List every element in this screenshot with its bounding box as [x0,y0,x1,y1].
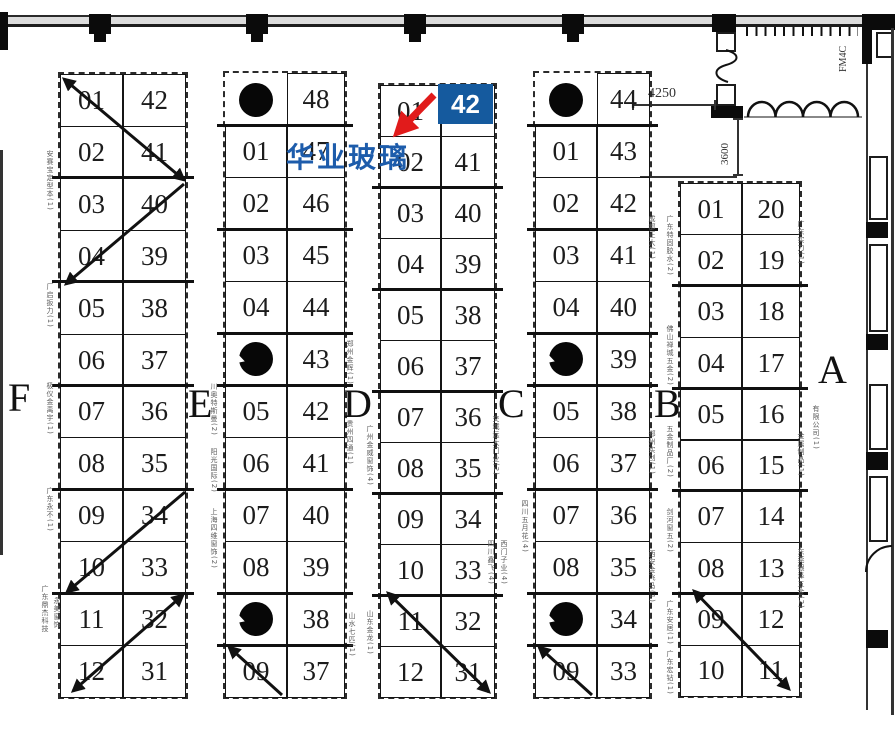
booth-cell-E41[interactable]: 41 [287,437,345,490]
booth-cell-F01[interactable]: 01 [60,74,123,127]
booth-cell-C38[interactable]: 38 [597,385,650,438]
booth-cell-E48[interactable]: 48 [287,73,345,126]
booth-cell-E02[interactable]: 02 [225,177,287,230]
booth-cell-D08[interactable]: 08 [380,442,441,494]
exhibitor-side-label: 阳光国际(2) [209,448,219,493]
column-pillar [89,14,111,34]
booth-cell-D36[interactable]: 36 [441,391,495,443]
booth-cell-E38[interactable]: 38 [287,593,345,646]
dimension-label-3600: 3600 [719,143,731,165]
booth-cell-C08[interactable]: 08 [535,541,597,594]
booth-cell-C06[interactable]: 06 [535,437,597,490]
booth-cell-B01[interactable]: 01 [680,183,742,235]
aisle-separator [372,492,503,495]
wall-block [866,630,888,648]
column-pillar [246,14,268,34]
booth-cell-E43[interactable]: 43 [287,333,345,386]
aisle-separator [672,489,808,492]
booth-cell-D10[interactable]: 10 [380,544,441,596]
booth-cell-D37[interactable]: 37 [441,340,495,392]
booth-cell-F09[interactable]: 09 [60,489,123,542]
booth-cell-E44[interactable]: 44 [287,281,345,334]
booth-cell-D34[interactable]: 34 [441,493,495,545]
booth-cell-E06[interactable]: 06 [225,437,287,490]
booth-cell-F31[interactable]: 31 [123,645,186,698]
aisle-separator [672,592,808,595]
booth-cell-C05[interactable]: 05 [535,385,597,438]
aisle-separator [52,384,194,387]
booth-cell-F41[interactable]: 41 [123,126,186,179]
booth-cell-C36[interactable]: 36 [597,489,650,542]
booth-cell-D11[interactable]: 11 [380,595,441,647]
booth-cell-D39[interactable]: 39 [441,238,495,290]
booth-cell-E03[interactable]: 03 [225,229,287,282]
aisle-separator [217,228,353,231]
booth-cell-F42[interactable]: 42 [123,74,186,127]
aisle-separator [527,488,658,491]
exhibitor-side-label: 郑州实创(1) [647,430,657,475]
booth-cell-F05[interactable]: 05 [60,282,123,335]
wall-block [866,222,888,238]
hatched-wall-section [746,27,858,36]
corridor-line [640,176,737,178]
dimension-tick [714,100,716,110]
aisle-separator [52,280,194,283]
booth-cell-F39[interactable]: 39 [123,230,186,283]
exhibitor-side-label: 极仪金禹宇(1) [45,382,55,435]
aisle-separator [527,644,658,647]
booth-cell-C01[interactable]: 01 [535,125,597,178]
aisle-separator [527,332,658,335]
booth-block-F: 0142024103400439053806370736083509341033… [58,72,188,699]
exhibitor-side-label: 四川五月花(4) [520,500,530,553]
booth-cell-C33[interactable]: 33 [597,645,650,698]
exhibitor-side-label: 永美窗饰 [52,597,62,629]
aisle-separator [672,284,808,287]
wall-niche [869,384,888,450]
booth-cell-D41[interactable]: 41 [441,136,495,188]
pillar-icon [549,342,583,376]
booth-cell-E46[interactable]: 46 [287,177,345,230]
aisle-separator [527,228,658,231]
booth-cell-B10[interactable]: 10 [680,645,742,697]
booth-cell-D40[interactable]: 40 [441,187,495,239]
exhibitor-side-label: 交城远大门业(2) [491,415,501,476]
booth-cell-E40[interactable]: 40 [287,489,345,542]
wall-niche [869,156,888,220]
exhibitor-side-label: 五金制品厂(2) [665,425,675,478]
aisle-separator [217,124,353,127]
left-wall [0,150,3,555]
booth-cell-B08[interactable]: 08 [680,542,742,594]
booth-cell-C42[interactable]: 42 [597,177,650,230]
door-jamb [716,32,736,52]
exhibitor-side-label: 有限公司(1) [811,405,821,450]
folding-door-arcs [748,102,858,117]
dimension-line-vertical [737,118,739,176]
exhibitor-side-label: 广东特固胶水(2) [665,215,675,276]
booth-cell-F36[interactable]: 36 [123,386,186,439]
booth-cell-B15[interactable]: 15 [742,440,800,492]
booth-cell-B14[interactable]: 14 [742,491,800,543]
booth-cell-C44[interactable]: 44 [597,73,650,126]
booth-cell-D07[interactable]: 07 [380,391,441,443]
booth-cell-C41[interactable]: 41 [597,229,650,282]
column-pillar-foot [94,34,106,42]
booth-cell-E09[interactable]: 09 [225,645,287,698]
booth-cell-B17[interactable]: 17 [742,337,800,389]
booth-cell-F10[interactable]: 10 [60,541,123,594]
booth-cell-F34[interactable]: 34 [123,489,186,542]
booth-cell-B09[interactable]: 09 [680,593,742,645]
exhibitor-side-label: 成都正大(1) [647,215,657,260]
aisle-separator [52,488,194,491]
booth-cell-F37[interactable]: 37 [123,334,186,387]
door-frame-block [712,14,736,32]
booth-cell-C03[interactable]: 03 [535,229,597,282]
wall-block [866,334,888,350]
booth-cell-E45[interactable]: 45 [287,229,345,282]
exhibitor-side-label: 广东永不(1) [45,487,55,532]
booth-cell-C37[interactable]: 37 [597,437,650,490]
booth-cell-E42[interactable]: 42 [287,385,345,438]
booth-cell-F02[interactable]: 02 [60,126,123,179]
aisle-separator [217,592,353,595]
exhibitor-side-label: 川奥特斯曼(2) [209,383,219,436]
booth-block-C: 4401430242034104403905380637073608353409… [533,71,652,699]
exhibitor-side-label: 佛山禅城五金(2) [665,325,675,386]
booth-cell-D38[interactable]: 38 [441,289,495,341]
booth-cell-F11[interactable]: 11 [60,593,123,646]
booth-cell-B11[interactable]: 11 [742,645,800,697]
door-jamb [716,84,736,106]
exhibitor-side-label: 四川鑫飞(4) [486,540,496,585]
top-wall [0,15,868,27]
booth-cell-F33[interactable]: 33 [123,541,186,594]
booth-cell-F38[interactable]: 38 [123,282,186,335]
aisle-separator [217,384,353,387]
exhibitor-side-label: 金属制品(1) [796,432,806,477]
column-pillar [562,14,584,34]
swing-door-symbol [716,50,736,82]
section-label-A: A [818,346,847,393]
exhibitor-side-label: 安赛宝定型本(1) [45,150,55,211]
booth-cell-B06[interactable]: 06 [680,440,742,492]
pillar-icon [549,83,583,117]
aisle-separator [672,387,808,390]
exhibitor-side-label: 西门子业(4) [499,540,509,585]
highlighted-booth-badge[interactable]: 42 [438,84,493,124]
section-label-F: F [8,374,30,421]
booth-cell-C02[interactable]: 02 [535,177,597,230]
booth-cell-B04[interactable]: 04 [680,337,742,389]
booth-cell-D12[interactable]: 12 [380,646,441,698]
exhibitor-side-label: 广东实力(1) [796,220,806,265]
pillar-icon [549,602,583,636]
exhibitor-side-label: 厂启扳力(1) [45,283,55,328]
booth-cell-B02[interactable]: 02 [680,234,742,286]
booth-cell-F06[interactable]: 06 [60,334,123,387]
booth-cell-D03[interactable]: 03 [380,187,441,239]
exhibitor-side-label: 郑州金辉(1) [345,340,355,385]
exhibitor-side-label: 广东宏钻(1) [665,650,675,695]
booth-cell-C39[interactable]: 39 [597,333,650,386]
booth-cell-F32[interactable]: 32 [123,593,186,646]
aisle-separator [527,592,658,595]
exhibitor-side-label: 广州金威窗饰(4) [365,425,375,486]
booth-cell-C07[interactable]: 07 [535,489,597,542]
booth-cell-B18[interactable]: 18 [742,286,800,338]
aisle-separator [527,384,658,387]
pillar-icon [239,83,273,117]
aisle-separator [372,288,503,291]
booth-cell-D04[interactable]: 04 [380,238,441,290]
aisle-separator [372,390,503,393]
column-pillar-foot [567,34,579,42]
right-wall [866,64,868,710]
door-arc [866,546,892,572]
exhibitor-side-label: 西安金飞马(1) [647,550,657,603]
aisle-separator [52,592,194,595]
booth-cell-F35[interactable]: 35 [123,437,186,490]
booth-cell-E04[interactable]: 04 [225,281,287,334]
exhibitor-side-label: 山水七匹(1) [347,612,357,657]
exhibitor-side-label: 贵州四通(1) [345,420,355,465]
highlighted-company-name: 华业玻璃 [286,136,410,176]
booth-cell-B07[interactable]: 07 [680,491,742,543]
booth-cell-B03[interactable]: 03 [680,286,742,338]
booth-cell-E07[interactable]: 07 [225,489,287,542]
booth-cell-F08[interactable]: 08 [60,437,123,490]
booth-cell-E01[interactable]: 01 [225,125,287,178]
booth-cell-C09[interactable]: 09 [535,645,597,698]
pillar-icon [239,602,273,636]
right-wall-outer [891,28,894,715]
aisle-separator [217,644,353,647]
booth-cell-F07[interactable]: 07 [60,386,123,439]
exhibitor-side-label: 上海四维窗饰(2) [209,508,219,569]
corner-wall [862,30,872,64]
exhibitor-side-label: 广东鼎杰科技 [40,585,50,633]
column-pillar-foot [409,34,421,42]
dimension-label-4250: 4250 [648,86,676,102]
booth-cell-D32[interactable]: 32 [441,595,495,647]
booth-cell-D05[interactable]: 05 [380,289,441,341]
dimension-tick [733,118,743,120]
aisle-separator [372,186,503,189]
wall-niche [869,476,888,542]
booth-cell-B12[interactable]: 12 [742,593,800,645]
booth-cell-B13[interactable]: 13 [742,542,800,594]
booth-cell-C43[interactable]: 43 [597,125,650,178]
booth-cell-E08[interactable]: 08 [225,541,287,594]
booth-cell-F03[interactable]: 03 [60,178,123,231]
aisle-separator [217,488,353,491]
exhibitor-side-label: 东莞银泽五金(2) [796,548,806,609]
booth-cell-D31[interactable]: 31 [441,646,495,698]
booth-block-B: 0120021903180417051606150714081309121011 [678,181,802,698]
booth-cell-F40[interactable]: 40 [123,178,186,231]
booth-cell-C40[interactable]: 40 [597,281,650,334]
exhibitor-side-label: 剑河窗五(2) [665,508,675,553]
door-code-label: FM4C [838,46,849,72]
booth-cell-D09[interactable]: 09 [380,493,441,545]
aisle-separator [527,124,658,127]
booth-cell-B05[interactable]: 05 [680,388,742,440]
exhibitor-side-label: 广东安居(1) [665,600,675,645]
wall-block [866,452,888,470]
wall-stub-left [0,12,8,50]
booth-cell-C04[interactable]: 04 [535,281,597,334]
aisle-separator [52,176,194,179]
pillar-icon [239,342,273,376]
booth-cell-D01[interactable]: 01 [380,85,441,137]
booth-cell-E05[interactable]: 05 [225,385,287,438]
booth-cell-B16[interactable]: 16 [742,388,800,440]
exhibitor-side-label: 山东金龙(1) [365,610,375,655]
wall-niche [869,244,888,332]
column-pillar-foot [251,34,263,42]
aisle-separator [217,332,353,335]
aisle-separator [372,594,503,597]
booth-cell-F04[interactable]: 04 [60,230,123,283]
booth-cell-E39[interactable]: 39 [287,541,345,594]
booth-cell-D06[interactable]: 06 [380,340,441,392]
booth-cell-D35[interactable]: 35 [441,442,495,494]
booth-cell-B20[interactable]: 20 [742,183,800,235]
section-label-C: C [498,380,525,427]
column-pillar [404,14,426,34]
booth-cell-E37[interactable]: 37 [287,645,345,698]
booth-cell-C35[interactable]: 35 [597,541,650,594]
booth-cell-C34[interactable]: 34 [597,593,650,646]
booth-cell-F12[interactable]: 12 [60,645,123,698]
booth-cell-B19[interactable]: 19 [742,234,800,286]
